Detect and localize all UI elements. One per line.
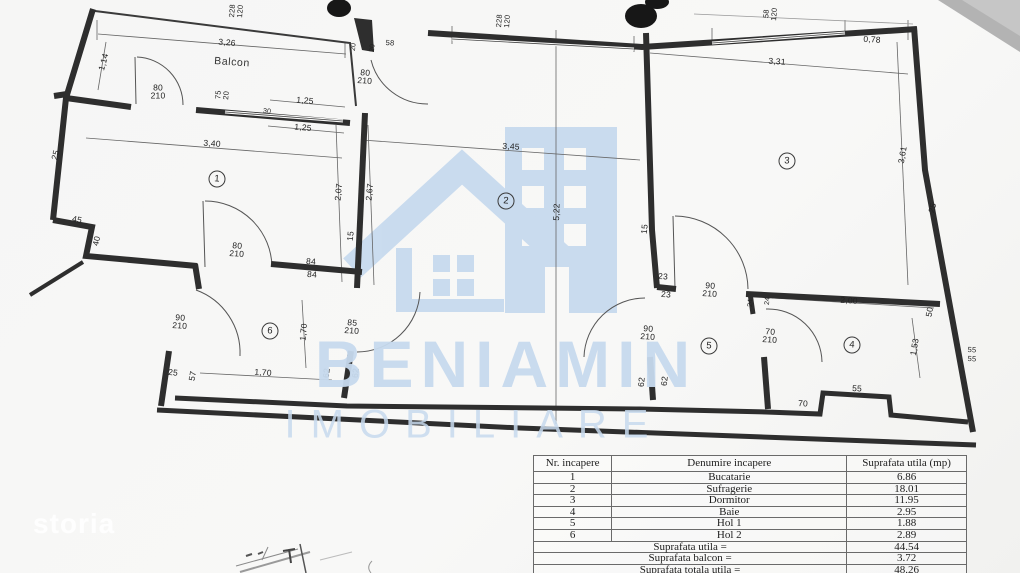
room-name: Hol 2 — [612, 529, 847, 541]
header-area: Suprafata utila (mp) — [847, 456, 967, 472]
dim-label: 57 — [188, 370, 197, 381]
dim-label: 24 — [747, 299, 755, 308]
table-row: 4 Baie 2.95 — [534, 506, 967, 518]
room-area: 6.86 — [847, 472, 967, 484]
dim-label: 3,40 — [203, 140, 221, 149]
room-nr: 6 — [534, 529, 612, 541]
room-area: 18.01 — [847, 483, 967, 495]
dim-label: 2,00 — [840, 297, 858, 305]
dim-label: 0,78 — [863, 36, 881, 44]
header-nr: Nr. incapere — [534, 456, 612, 472]
watermark-brand-tagline: IMOBILIARE — [285, 403, 664, 448]
room-area: 2.95 — [847, 506, 967, 518]
pencil-sketch-artifact — [236, 544, 372, 573]
dim-label: 40 — [92, 235, 101, 246]
dim-label: 84 — [307, 271, 317, 279]
room-name: Baie — [612, 506, 847, 518]
dim-label: 1,70 — [300, 323, 309, 341]
door-arcs — [135, 57, 822, 362]
room-nr: 4 — [534, 506, 612, 518]
dim-label: 23 — [658, 273, 668, 281]
dim-label: 58 120 — [762, 7, 778, 21]
room-area: 2.89 — [847, 529, 967, 541]
dim-label: 80 210 — [357, 69, 373, 85]
dim-label: 15 — [347, 231, 355, 241]
table-row: 1 Bucatarie 6.86 — [534, 472, 967, 484]
storia-logo: storia — [33, 508, 115, 540]
dim-label: 1,70 — [254, 369, 272, 378]
dim-label: 50 — [925, 306, 934, 317]
dim-label: 228 120 — [228, 4, 244, 18]
table-row: 2 Sufragerie 18.01 — [534, 483, 967, 495]
dim-label: 58 — [385, 39, 394, 47]
dim-label: 3,45 — [502, 143, 520, 151]
dim-label: 2,67 — [366, 183, 375, 201]
dim-label: 23 — [661, 291, 671, 299]
total-label: Suprafata balcon = — [534, 553, 847, 565]
room-area: 11.95 — [847, 495, 967, 507]
dim-label: 5,22 — [553, 203, 561, 221]
total-value: 44.54 — [847, 541, 967, 553]
agency-logo-watermark — [352, 127, 617, 313]
balcony-label: Balcon — [214, 58, 250, 68]
window-glazing — [225, 18, 845, 121]
dim-label: 75 20 — [214, 90, 230, 100]
dim-label: 80 210 — [151, 85, 166, 100]
dim-label: 70 — [798, 400, 808, 408]
dim-label: 90 210 — [702, 282, 718, 298]
dim-label: 30 — [263, 108, 272, 116]
room-nr: 3 — [534, 495, 612, 507]
dim-label: 70 210 — [762, 328, 778, 344]
room-area: 1.88 — [847, 518, 967, 530]
dim-label: 15 — [641, 224, 649, 234]
dim-label: 1,25 — [296, 97, 314, 106]
dim-label: 90 210 — [172, 314, 188, 330]
table-total-row: Suprafata totala utila = 48.26 — [534, 564, 967, 573]
dim-label: 20 — [350, 43, 358, 52]
table-total-row: Suprafata utila = 44.54 — [534, 541, 967, 553]
room-nr: 1 — [534, 472, 612, 484]
dim-label: 55 — [967, 355, 976, 363]
dim-label: 3,26 — [218, 39, 236, 48]
header-name: Denumire incapere — [612, 456, 847, 472]
dim-label: 2,07 — [335, 183, 344, 201]
room-name: Sufragerie — [612, 483, 847, 495]
room-nr: 5 — [534, 518, 612, 530]
dim-label: 24 — [764, 297, 772, 306]
room-name: Dormitor — [612, 495, 847, 507]
watermark-brand-name: BENIAMIN — [315, 326, 697, 402]
table-row: 6 Hol 2 2.89 — [534, 529, 967, 541]
room-name: Hol 1 — [612, 518, 847, 530]
total-label: Suprafata totala utila = — [534, 564, 847, 573]
dim-label: 228 120 — [495, 14, 511, 28]
table-total-row: Suprafata balcon = 3.72 — [534, 553, 967, 565]
total-value: 48.26 — [847, 564, 967, 573]
table-row: 3 Dormitor 11.95 — [534, 495, 967, 507]
total-label: Suprafata utila = — [534, 541, 847, 553]
total-value: 3.72 — [847, 553, 967, 565]
dim-label: 84 — [306, 258, 316, 266]
room-name: Bucatarie — [612, 472, 847, 484]
areas-table-header-row: Nr. incapere Denumire incapere Suprafata… — [534, 456, 967, 472]
areas-table: Nr. incapere Denumire incapere Suprafata… — [533, 455, 967, 573]
dim-label: 55 — [967, 346, 976, 354]
table-row: 5 Hol 1 1.88 — [534, 518, 967, 530]
dim-label: 25 — [168, 369, 179, 377]
dim-label: 45 — [71, 215, 82, 224]
dim-label: 80 210 — [229, 242, 245, 258]
scan-corner-artifact — [938, 0, 1020, 52]
dim-label: 20 — [369, 44, 377, 53]
scanned-floor-plan-page: 228 1203,261,1480 21075 201,25301,252020… — [0, 0, 1020, 573]
dim-label: 3,31 — [768, 58, 786, 67]
dim-label: 55 — [852, 385, 862, 393]
dim-label: 1,25 — [294, 124, 312, 133]
room-nr: 2 — [534, 483, 612, 495]
